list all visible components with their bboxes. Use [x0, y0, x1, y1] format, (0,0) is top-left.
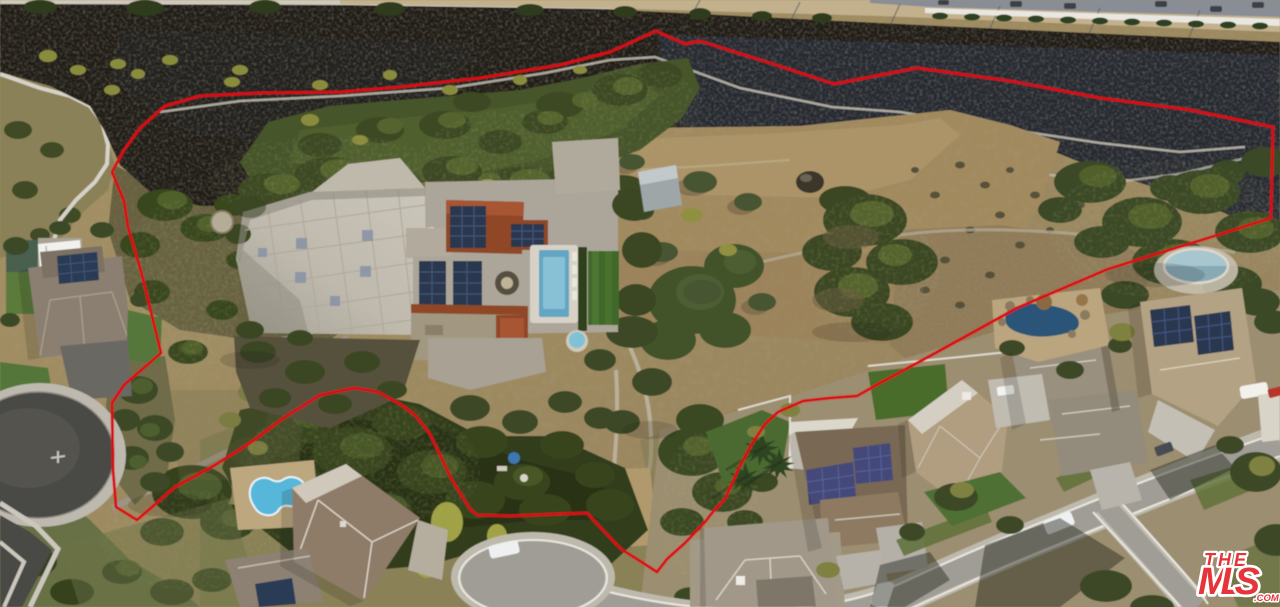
svg-text:MLS: MLS	[1198, 561, 1260, 603]
svg-text:.COM: .COM	[1254, 593, 1280, 604]
